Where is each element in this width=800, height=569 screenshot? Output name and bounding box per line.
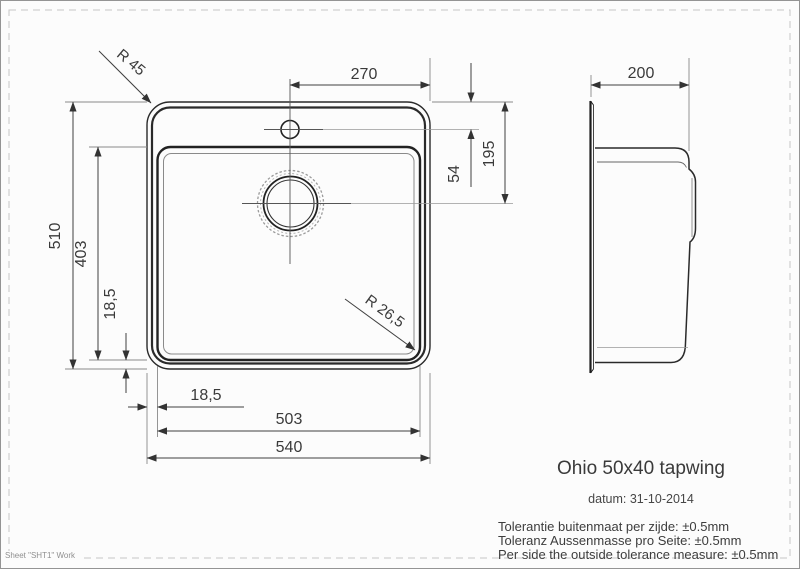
sink-outer-outline <box>147 102 430 369</box>
radius-label-r26-5: R 26,5 <box>362 291 408 331</box>
bowl-outline <box>158 147 421 360</box>
dimension-lines <box>73 51 505 458</box>
dim-label-510: 510 <box>47 223 64 250</box>
side-view: 200 <box>591 58 696 373</box>
extension-lines <box>65 58 513 464</box>
dim-label-18-5v: 18,5 <box>102 288 119 319</box>
drawing-sheet: 270 54 195 510 403 18,5 18,5 503 540 R 4… <box>0 0 800 569</box>
dim-label-54: 54 <box>446 165 463 183</box>
dim-label-403: 403 <box>73 241 90 268</box>
drawing-title: Ohio 50x40 tapwing <box>491 458 791 480</box>
side-bowl-profile <box>595 148 696 363</box>
cad-drawing-canvas: 270 54 195 510 403 18,5 18,5 503 540 R 4… <box>1 1 800 569</box>
side-rim-inner-line <box>597 162 687 168</box>
tolerance-line-nl: Tolerantie buitenmaat per zijde: ±0.5mm <box>498 519 798 534</box>
dim-label-200: 200 <box>628 65 655 82</box>
tolerance-line-en: Per side the outside tolerance measure: … <box>498 547 798 562</box>
dim-label-195: 195 <box>481 141 498 168</box>
dim-label-540: 540 <box>276 439 303 456</box>
drawing-date: datum: 31-10-2014 <box>491 492 791 506</box>
radius-label-r45: R 45 <box>113 46 148 79</box>
sheet-name-label: Sheet "SHT1" Work <box>5 551 79 560</box>
dim-label-270: 270 <box>351 66 378 83</box>
side-flange <box>591 101 594 373</box>
dim-label-503: 503 <box>276 411 303 428</box>
bowl-inner-edge <box>164 154 415 355</box>
front-view: 270 54 195 510 403 18,5 18,5 503 540 R 4… <box>47 46 513 464</box>
tolerance-line-de: Toleranz Aussenmasse pro Seite: ±0.5mm <box>498 533 798 548</box>
dim-label-18-5h: 18,5 <box>190 387 221 404</box>
